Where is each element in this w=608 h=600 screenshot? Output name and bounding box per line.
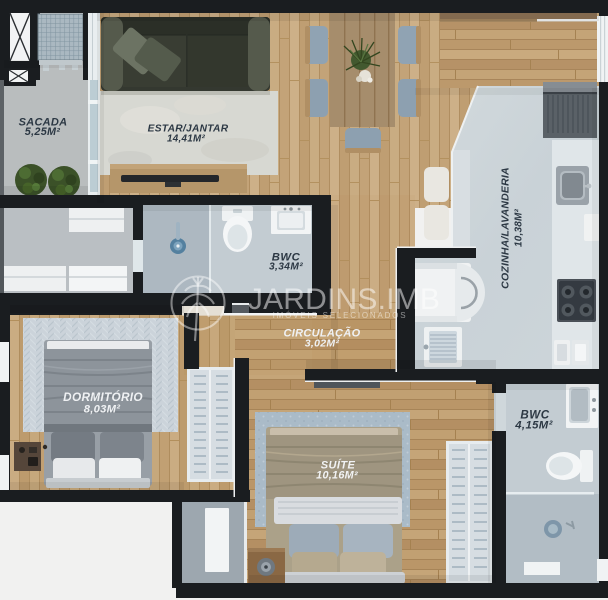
- svg-text:8,03M²: 8,03M²: [84, 404, 121, 416]
- svg-text:14,41M²: 14,41M²: [167, 134, 205, 145]
- svg-text:DORMITÓRIO: DORMITÓRIO: [63, 390, 143, 404]
- svg-text:4,15M²: 4,15M²: [514, 420, 553, 432]
- svg-text:3,34M²: 3,34M²: [269, 262, 303, 273]
- svg-text:3,02M²: 3,02M²: [305, 338, 340, 350]
- svg-text:IMÓVEIS SELECIONADOS: IMÓVEIS SELECIONADOS: [273, 311, 408, 320]
- svg-text:5,25M²: 5,25M²: [25, 126, 61, 138]
- svg-text:10,38M²: 10,38M²: [514, 208, 525, 247]
- svg-text:COZINHA/LAVANDERIA: COZINHA/LAVANDERIA: [500, 167, 512, 289]
- svg-text:10,16M²: 10,16M²: [316, 470, 358, 482]
